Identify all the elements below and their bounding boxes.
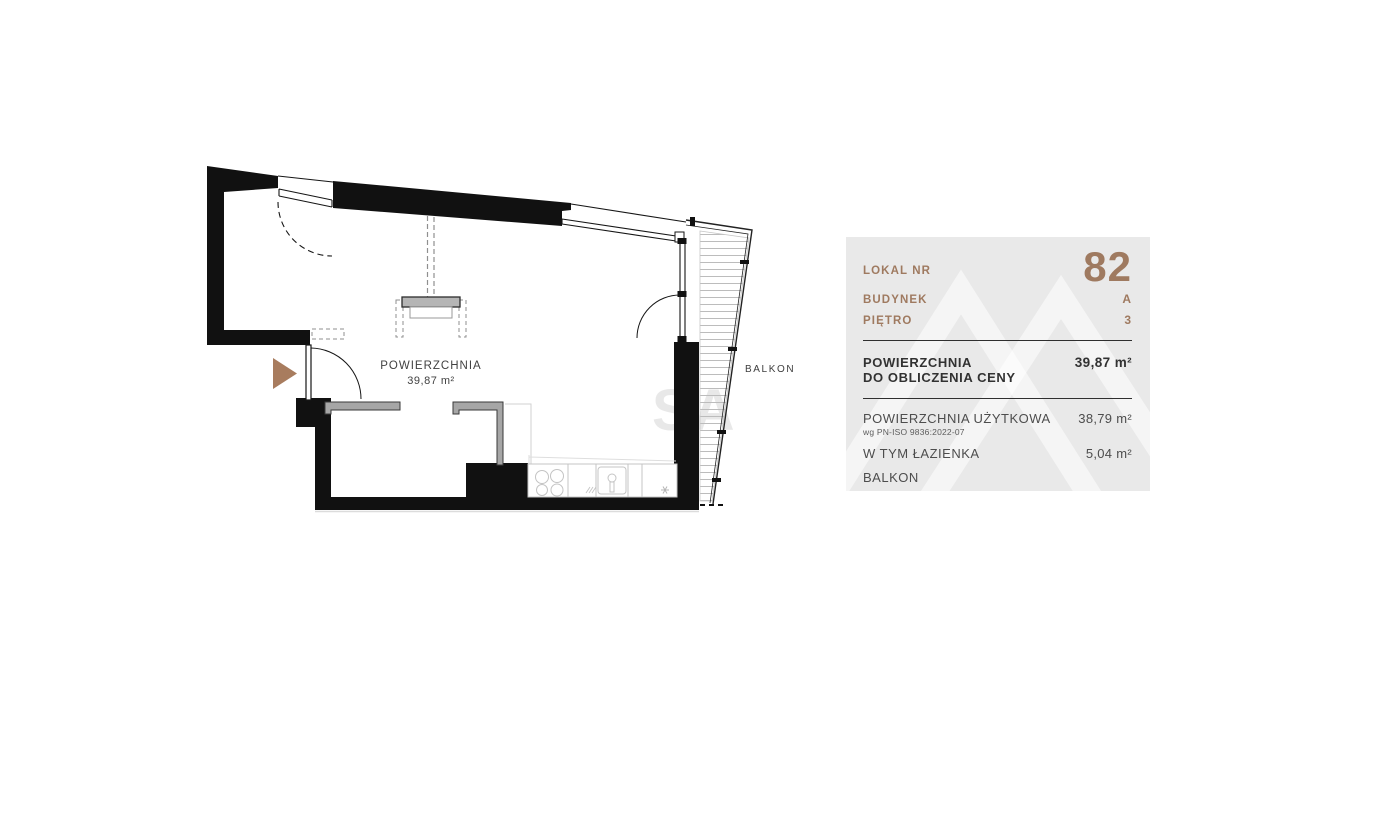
building-value: A [1122,292,1132,306]
price-area-value: 39,87 m² [1075,355,1132,370]
balcony-post-icon [712,478,721,482]
unit-number-row: LOKAL NR 82 [863,248,1132,282]
usable-area-value: 38,79 m² [1078,411,1132,426]
walls [207,166,699,510]
area-label: POWIERZCHNIA [380,360,481,372]
divider [863,398,1132,399]
usable-area-norm: wg PN-ISO 9836:2022-07 [863,427,1132,437]
floor-value: 3 [1124,313,1132,327]
unit-number-label: LOKAL NR [863,265,931,282]
bathroom-area-label: W TYM ŁAZIENKA [863,446,980,461]
window-top-left [278,176,333,256]
bathroom-area-row: W TYM ŁAZIENKA 5,04 m² [863,446,1132,461]
balcony-post-icon [740,260,749,264]
balcony-label: BALKON [745,364,795,375]
window-top-right [562,204,686,242]
unit-number-value: 82 [1083,252,1132,282]
divider [863,340,1132,341]
info-panel: LOKAL NR 82 BUDYNEK A PIĘTRO 3 POWIERZCH… [846,237,1150,491]
balcony-area-row: BALKON [863,470,1132,485]
area-value: 39,87 m² [407,375,454,387]
balcony-post-icon [690,217,695,226]
floor-row: PIĘTRO 3 [863,313,1132,327]
floor-plan: SA [0,0,1379,824]
entrance-arrow-icon [273,358,297,389]
balcony-door [637,238,687,342]
bathroom-partitions [325,402,503,465]
building-label: BUDYNEK [863,294,928,306]
balcony-area-label: BALKON [863,470,919,485]
island-table [396,216,466,337]
entrance-door-leaf [306,345,311,400]
bathroom-area-value: 5,04 m² [1086,446,1132,461]
page: SA [0,0,1379,824]
building-row: BUDYNEK A [863,292,1132,306]
balcony-post-icon [728,347,737,351]
usable-area-label: POWIERZCHNIA UŻYTKOWA [863,411,1051,426]
floor-label: PIĘTRO [863,315,912,327]
balcony-post-icon [717,430,726,434]
usable-area-row: POWIERZCHNIA UŻYTKOWA 38,79 m² [863,411,1132,426]
price-area-label: POWIERZCHNIA DO OBLICZENIA CENY [863,355,1016,385]
detail-list: POWIERZCHNIA UŻYTKOWA 38,79 m² wg PN-ISO… [863,411,1132,485]
price-area-row: POWIERZCHNIA DO OBLICZENIA CENY 39,87 m² [863,355,1132,385]
